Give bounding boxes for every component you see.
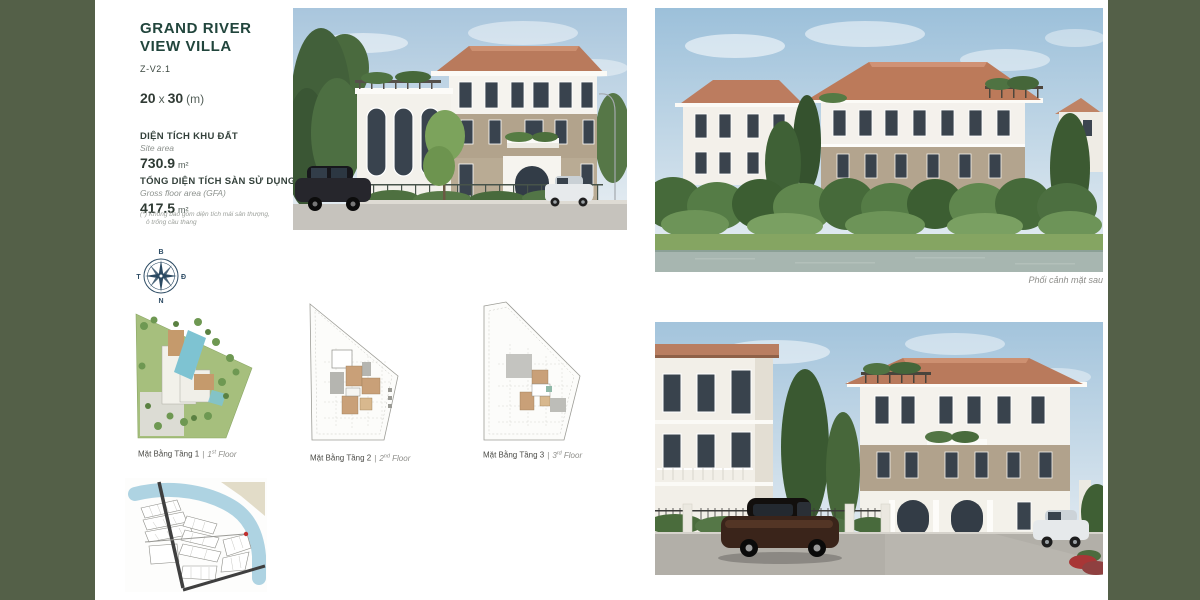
lot-unit: (m) bbox=[186, 92, 204, 106]
footnote-line-2: ô trống cầu thang bbox=[146, 219, 270, 227]
floor-plan-3-label-vi: Mặt Bằng Tầng 3 bbox=[483, 451, 544, 460]
gfa-label-en: Gross floor area (GFA) bbox=[140, 188, 315, 198]
gfa-label-vi: TỔNG DIỆN TÍCH SÀN SỬ DỤNG bbox=[140, 176, 315, 187]
title-line-1: GRAND RIVER bbox=[140, 20, 252, 38]
page-title: GRAND RIVER VIEW VILLA bbox=[140, 20, 252, 56]
lot-width: 20 bbox=[140, 90, 156, 106]
gfa-spec: TỔNG DIỆN TÍCH SÀN SỬ DỤNG Gross floor a… bbox=[140, 176, 315, 216]
location-map-thumbnail bbox=[125, 478, 267, 592]
floor-plan-1-label-vi: Mặt Bằng Tầng 1 bbox=[138, 450, 199, 459]
location-marker bbox=[244, 532, 248, 536]
lot-depth: 30 bbox=[168, 90, 184, 106]
floor-plan-2-label: Mặt Bằng Tầng 2|2nd Floor bbox=[310, 453, 410, 463]
site-area-label-vi: DIỆN TÍCH KHU ĐẤT bbox=[140, 131, 315, 142]
rear-photo-caption: Phối cảnh mặt sau bbox=[903, 275, 1103, 285]
title-line-2: VIEW VILLA bbox=[140, 38, 252, 56]
road bbox=[293, 204, 627, 230]
floor-plan-3-thumbnail bbox=[476, 298, 588, 446]
floor-plan-2-thumbnail bbox=[304, 300, 404, 446]
compass-icon: B Đ N T bbox=[134, 246, 188, 304]
footnote-line-1: (*) Không bao gồm diện tích mái sân thượ… bbox=[140, 211, 270, 219]
compass-west-label: T bbox=[136, 274, 141, 281]
compass-north-label: B bbox=[158, 249, 163, 256]
site-area-unit: m² bbox=[178, 160, 189, 170]
floor-plan-2-label-vi: Mặt Bằng Tầng 2 bbox=[310, 454, 371, 463]
footnote: (*) Không bao gồm diện tích mái sân thượ… bbox=[140, 211, 270, 227]
site-area-value: 730.9 bbox=[140, 155, 175, 171]
model-code: Z-V2.1 bbox=[140, 64, 171, 74]
floor-plan-1-label: Mặt Bằng Tầng 1|1st Floor bbox=[138, 449, 237, 459]
brochure-page: GRAND RIVER VIEW VILLA Z-V2.1 20x30(m) D… bbox=[0, 0, 1200, 600]
villa-rear-photo bbox=[655, 8, 1103, 272]
lot-dimensions: 20x30(m) bbox=[140, 90, 207, 106]
right-green-bar bbox=[1108, 0, 1200, 600]
compass-east-label: Đ bbox=[181, 274, 186, 281]
main-villa bbox=[807, 62, 1043, 193]
floor-plan-3-label: Mặt Bằng Tầng 3|3rd Floor bbox=[483, 450, 582, 460]
grass-bank bbox=[655, 234, 1103, 250]
left-green-bar bbox=[0, 0, 95, 600]
villa-front-left-photo bbox=[293, 8, 627, 230]
site-area-label-en: Site area bbox=[140, 143, 315, 153]
villa-street-photo bbox=[655, 322, 1103, 575]
water bbox=[655, 250, 1103, 272]
floor-plan-1-thumbnail bbox=[128, 306, 254, 440]
times-sign: x bbox=[159, 92, 165, 106]
site-area-spec: DIỆN TÍCH KHU ĐẤT Site area 730.9m² bbox=[140, 131, 315, 171]
compass-south-label: N bbox=[158, 298, 163, 304]
